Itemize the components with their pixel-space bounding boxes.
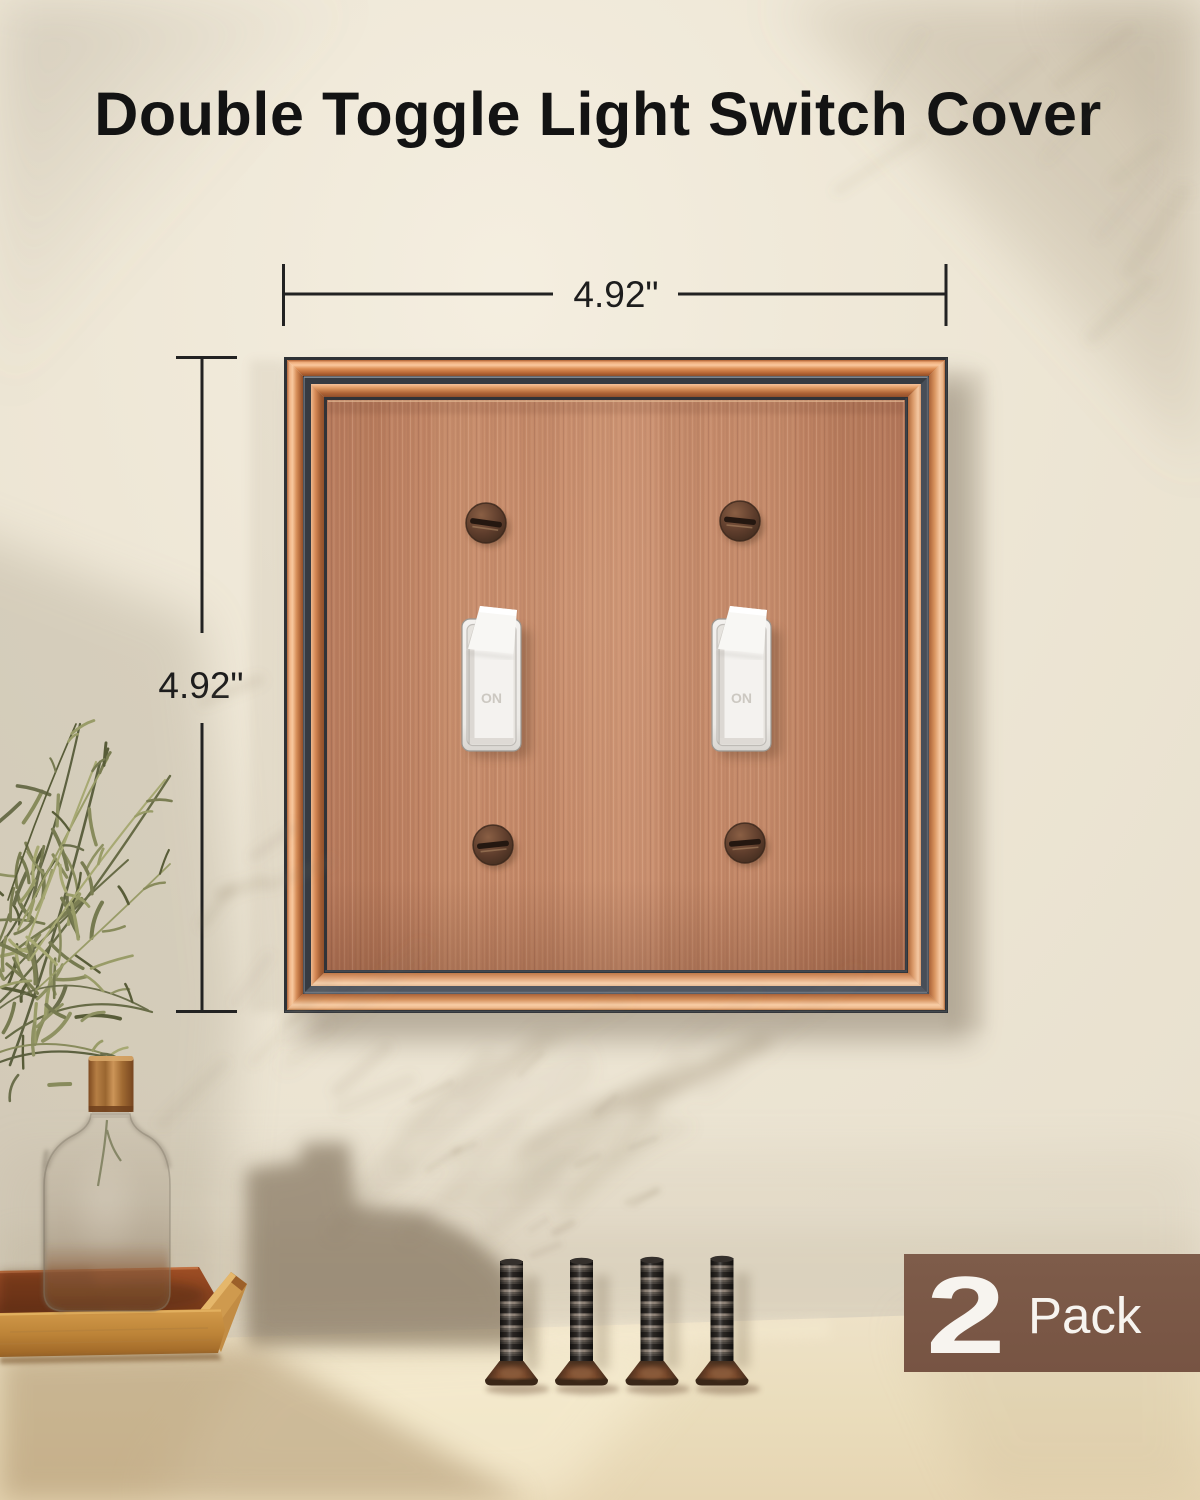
svg-text:Pack: Pack bbox=[1028, 1287, 1142, 1344]
svg-text:ON: ON bbox=[481, 690, 502, 706]
svg-text:ON: ON bbox=[731, 690, 752, 706]
svg-text:2: 2 bbox=[926, 1255, 1006, 1377]
svg-text:Double Toggle Light Switch Cov: Double Toggle Light Switch Cover bbox=[94, 80, 1102, 148]
svg-text:4.92": 4.92" bbox=[573, 274, 658, 315]
